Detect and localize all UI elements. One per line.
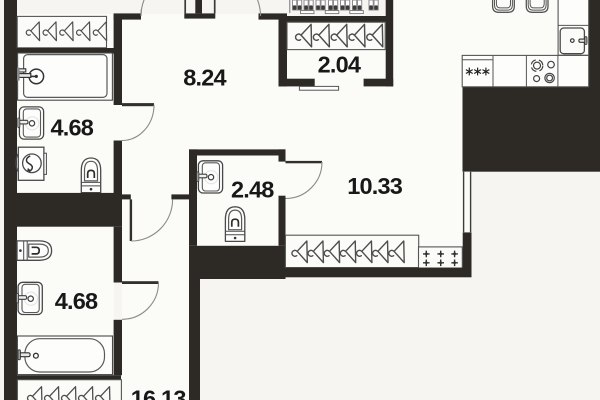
svg-text:10.33: 10.33 xyxy=(347,173,403,199)
svg-text:16.13: 16.13 xyxy=(131,385,187,400)
svg-text:4.68: 4.68 xyxy=(55,288,98,314)
svg-text:4.68: 4.68 xyxy=(51,114,94,140)
svg-text:2.48: 2.48 xyxy=(231,176,274,202)
svg-text:8.24: 8.24 xyxy=(183,65,226,91)
svg-text:2.04: 2.04 xyxy=(318,51,361,77)
